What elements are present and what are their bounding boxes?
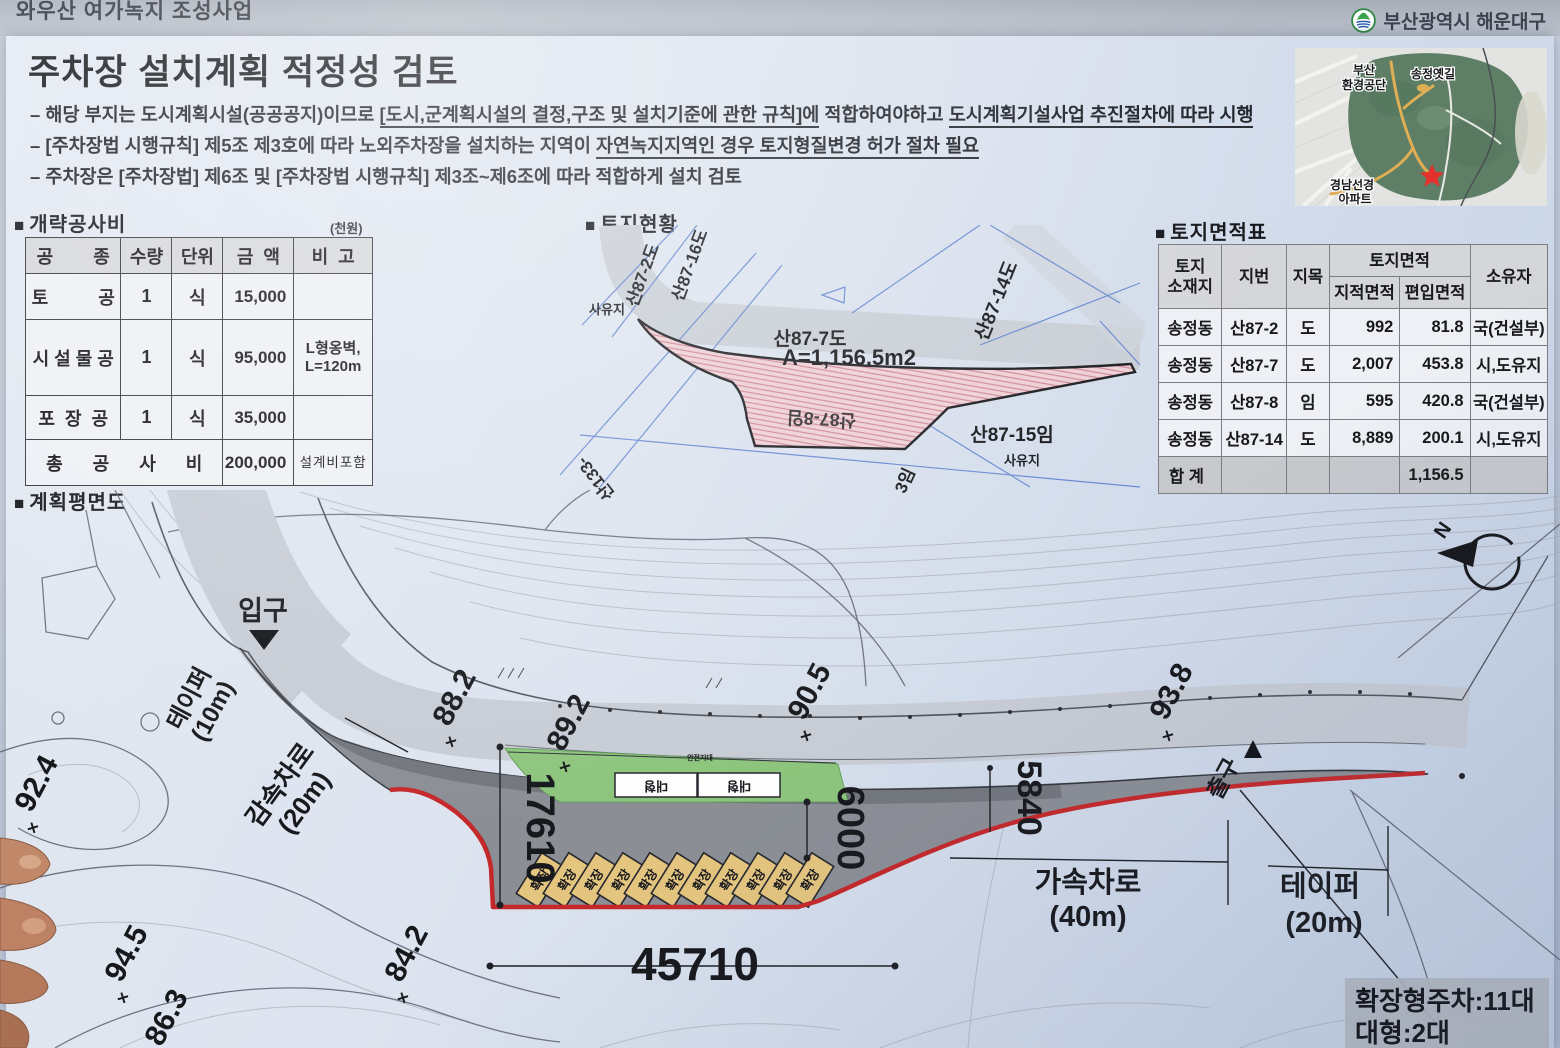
review-notes: – 해당 부지는 도시계획시설(공공공지)이므로 [도시,군계획시설의 결정,구…	[30, 99, 1290, 192]
private-land-label-1: 사유지	[589, 302, 625, 317]
map-label-songjeong-trail: 송정옛길	[1411, 66, 1455, 81]
top-strip: 와우산 여가녹지 조성사업 부산광역시 해운대구	[0, 0, 1560, 36]
large-parking-stalls: 대형 대형	[615, 773, 780, 797]
site-plan-drawing: 안전지대 대형 대형 확장 확장 확장 확장 확장 확장 확장 확장 확장 확장…	[0, 490, 1560, 1048]
svg-text:86.3: 86.3	[138, 984, 195, 1048]
cost-total-row: 총 공 사 비200,000설계비포함	[26, 440, 373, 486]
dim-17610: 17610	[518, 772, 562, 883]
dim-45710: 45710	[631, 938, 759, 990]
cost-col-note: 비 고	[294, 238, 373, 274]
bullet-3: – 주차장은 [주차장법] 제6조 및 [주차장법 시행규칙] 제3조~제6조에…	[30, 161, 1290, 192]
svg-text:×: ×	[112, 988, 135, 1007]
map-label-apartment-1: 경남선경	[1330, 177, 1374, 192]
area-table-heading: ■토지면적표	[1155, 216, 1267, 245]
area-col-owner: 소유자	[1470, 245, 1547, 309]
land-status-drawing: A=1,156.5m2 산87-7도 산87-14도 산87-15임 산87-8…	[560, 225, 1145, 505]
north-arrow-icon	[1437, 540, 1478, 567]
access-road	[152, 490, 1548, 789]
table-row: 송정동산87-8임595420.8국(건설부)	[1159, 383, 1548, 420]
project-title: 와우산 여가녹지 조성사업	[16, 0, 253, 25]
expansion-parking-stalls: 확장 확장 확장 확장 확장 확장 확장 확장 확장 확장 확장	[516, 853, 833, 907]
accel-lane-label: 가속차로	[1035, 866, 1142, 899]
taper20-label: 테이퍼	[1280, 870, 1360, 903]
parcel-label-87-7: 산87-7도	[774, 328, 847, 350]
table-row: 송정동산87-14도8,889200.1시,도유지	[1159, 420, 1548, 457]
cost-col-qty: 수량	[121, 238, 172, 274]
busan-haeundae-logo-icon	[1351, 8, 1376, 33]
svg-text:×: ×	[22, 818, 45, 837]
org-name: 부산광역시 해운대구	[1383, 7, 1546, 34]
large-stall-label: 대형	[644, 779, 668, 794]
svg-text:×: ×	[392, 988, 415, 1007]
north-label: N	[1430, 518, 1456, 542]
map-label-busan: 부산	[1353, 62, 1375, 77]
summary-line-large: 대형:2대	[1355, 1017, 1539, 1048]
parcel-label-87-15: 산87-15임	[970, 424, 1054, 446]
table-row: 송정동산87-7도2,007453.8시,도유지	[1159, 346, 1548, 383]
area-col-jibun: 지번	[1222, 245, 1287, 309]
area-col-landarea: 토지면적	[1329, 245, 1470, 277]
private-land-label-2: 사유지	[1004, 453, 1040, 468]
section-bullet-icon: ■	[14, 216, 25, 235]
planning-board: 와우산 여가녹지 조성사업 부산광역시 해운대구 주차장 설치계획 적정성 검토…	[0, 0, 1560, 1048]
safety-zone-label: 안전지대	[687, 753, 713, 762]
table-row: 송정동산87-2도99281.8국(건설부)	[1159, 309, 1548, 346]
area-col-cadastral: 지적면적	[1329, 277, 1400, 309]
cost-section-heading: ■개략공사비	[14, 208, 126, 237]
bullet-1: – 해당 부지는 도시계획시설(공공공지)이므로 [도시,군계획시설의 결정,구…	[30, 99, 1290, 130]
decel-lane-label: 감속차로 (20m)	[239, 737, 344, 850]
dim-6000: 6000	[829, 786, 871, 871]
cost-col-type: 공 종	[26, 238, 121, 274]
svg-text:84.2: 84.2	[378, 920, 435, 987]
accel-lane-length: (40m)	[1049, 901, 1126, 933]
map-label-apartment-2: 아파트	[1338, 191, 1371, 206]
table-row: 토 공1식15,000	[26, 274, 373, 320]
table-row: 포 장 공1식35,000	[26, 396, 373, 440]
parking-summary-box: 확장형주차:11대 대형:2대	[1345, 978, 1549, 1048]
cost-unit-note: (천원)	[330, 218, 363, 237]
parcel-label-87-16: 산87-16도	[668, 226, 712, 303]
large-stall-label: 대형	[727, 779, 751, 794]
svg-text:92.4: 92.4	[8, 750, 65, 817]
location-map: 부산 환경공단 송정옛길 경남선경 아파트	[1295, 48, 1547, 206]
org-header: 부산광역시 해운대구	[1351, 7, 1546, 34]
summary-line-expansion: 확장형주차:11대	[1355, 985, 1539, 1017]
section-bullet-icon: ■	[1155, 224, 1166, 243]
taper20-length: (20m)	[1285, 907, 1362, 939]
parcel-label-87-8: 산87-8임	[787, 407, 857, 431]
area-col-location: 토지 소재지	[1159, 245, 1222, 309]
land-area-table: 토지 소재지 지번 지목 토지면적 소유자 지적면적 편입면적 송정동산87-2…	[1158, 244, 1548, 494]
entrance-label: 입구	[238, 596, 288, 626]
area-col-incorporated: 편입면적	[1400, 277, 1470, 309]
cost-col-amount: 금 액	[223, 238, 294, 274]
bullet-2: – [주차장법 시행규칙] 제5조 제3호에 따라 노외주차장을 설치하는 지역…	[30, 130, 1290, 161]
cost-table: 공 종 수량 단위 금 액 비 고 토 공1식15,000 시 설 물 공1식9…	[25, 237, 373, 486]
page-title: 주차장 설치계획 적정성 검토	[28, 44, 459, 95]
map-label-hwangyeong: 환경공단	[1342, 77, 1386, 92]
area-col-jimok: 지목	[1287, 245, 1329, 309]
area-total-row: 합 계1,156.5	[1159, 457, 1548, 494]
table-row: 시 설 물 공1식95,000L형옹벽, L=120m	[26, 320, 373, 396]
taper10-label: 테이퍼 (10m)	[162, 663, 241, 747]
hand	[0, 838, 56, 1048]
cost-col-unit: 단위	[172, 238, 223, 274]
dim-5840: 5840	[1010, 760, 1048, 836]
svg-text:94.5: 94.5	[98, 920, 155, 987]
